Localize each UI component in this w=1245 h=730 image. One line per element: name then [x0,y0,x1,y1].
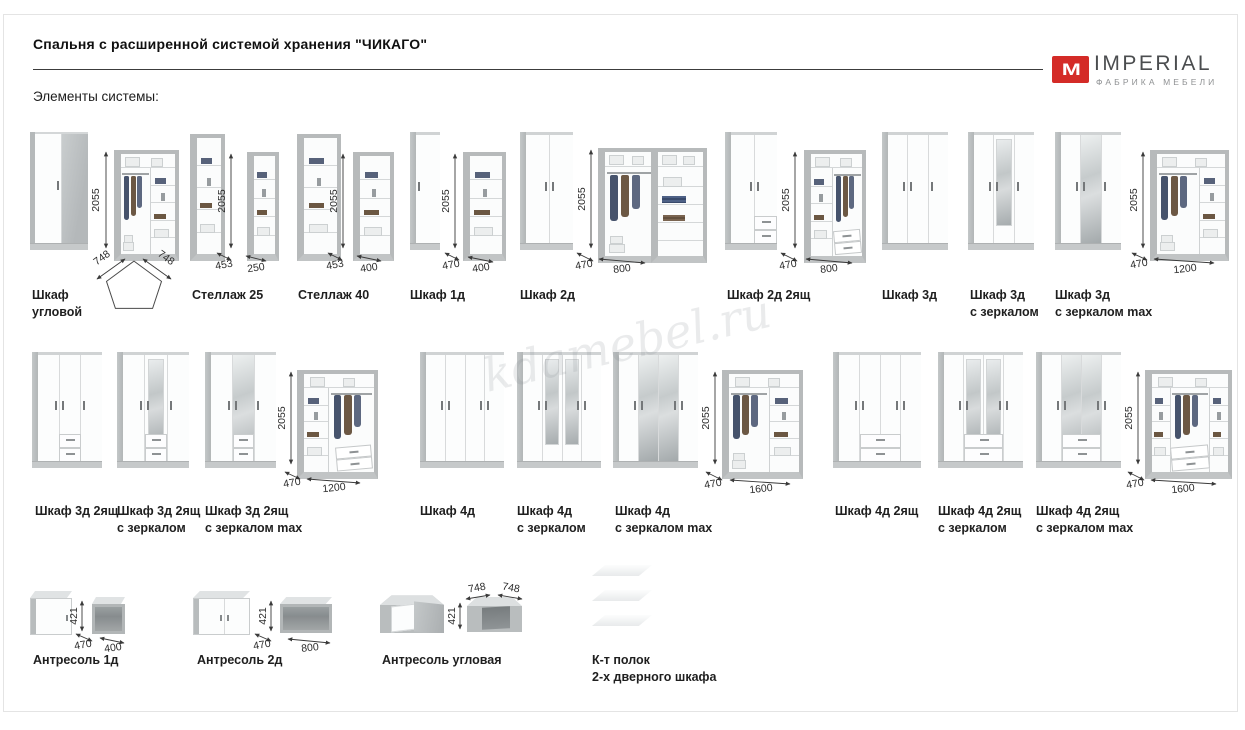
storage-box [840,158,852,167]
dimension-arrow [288,639,330,643]
interior-columns [360,160,390,254]
interior-column-cub [304,388,328,472]
storage-box [663,177,682,187]
wardrobe-closed-view [938,352,1023,468]
interior-columns [1157,168,1225,254]
shelf-item [819,194,823,202]
shelf-line [360,198,390,199]
wardrobe-closed-view [420,352,504,468]
item-label-line: 2-х дверного шкафа [592,669,716,686]
door-handle [66,615,68,621]
wardrobe-plinth [613,461,698,468]
item-label-line: Шкаф 4д 2ящ [938,503,1021,520]
item-shkaf-uglovoy: 2055748748Шкафугловой [30,132,180,322]
shelf-item [307,432,319,437]
item-interior-4d: 20554701600 [700,352,816,502]
item-label: Шкаф 3дс зеркалом [970,287,1039,321]
corner-cabinet-open-view [467,595,522,632]
wardrobe-door [1101,355,1121,462]
wardrobe-plinth [30,243,88,250]
wardrobe-door [254,355,276,462]
item-label-line: Шкаф 4д [420,503,475,520]
wardrobe-open-view [297,134,341,261]
catalog-page: Спальня с расширенной системой хранения … [0,0,1245,730]
dimension-arrow [76,634,92,641]
item-label: Шкаф 3дс зеркалом max [1055,287,1152,321]
shelf-item [308,398,319,404]
door-handle [634,401,636,410]
shelf-item [262,189,266,197]
cabinet-top-face [467,595,522,606]
interior-columns [470,160,502,254]
wardrobe-closed-view [410,132,440,250]
shelf-item [309,158,324,164]
wardrobe-plinth [410,243,440,250]
item-label-line: Шкаф 3д [1055,287,1152,304]
shelf-line [770,438,799,439]
wardrobe-door [658,355,678,462]
wardrobe-closed-view [32,352,102,468]
storage-box [309,224,328,233]
item-label: К-т полок2-х дверного шкафа [592,652,716,686]
door-handle [228,401,230,410]
item-label: Шкаф 3д 2ящс зеркалом max [205,503,302,537]
item-label-line: с зеркалом [938,520,1021,537]
hanging-clothes [610,175,618,222]
interior-column-cub [769,388,799,472]
item-label: Шкаф 4д 2ящс зеркалом max [1036,503,1133,537]
shelf-line [470,216,502,217]
door-handle [1064,401,1066,410]
dimension-label: 748 [501,581,520,596]
door-handle [959,401,961,410]
wardrobe-door [888,135,907,244]
wardrobe-door [523,355,542,462]
shelf-line [1210,405,1228,406]
wardrobe-door [1101,135,1121,244]
storage-box [1203,229,1218,238]
door-handle [83,401,85,410]
shelf-item [1210,193,1214,201]
door-handle [55,401,57,410]
interior-column-cub [360,160,390,254]
wardrobe-door [638,355,658,462]
door-handle [170,401,172,410]
hanging-clothes [751,395,757,427]
wardrobe-closed-view [882,132,948,250]
shelf-item [309,203,325,208]
wardrobe-front [523,355,601,462]
item-label-line: Шкаф 3д 2ящ [205,503,302,520]
storage-box [683,156,695,165]
item-label-line: Шкаф 3д 2ящ [117,503,200,520]
shelf-line [1152,438,1170,439]
dimension-label: 421 [257,607,269,625]
item-label: Шкаф 3д 2ящс зеркалом [117,503,200,537]
door-handle [1076,182,1078,191]
shelf-item [364,210,378,215]
shelf-line [197,187,221,188]
mirror [148,359,165,444]
item-label: Антресоль 1д [33,652,118,669]
wardrobe-plinth [117,461,189,468]
wardrobe-front [731,135,777,244]
interior-columns [605,167,653,256]
dimension-label: 2055 [90,188,102,212]
shelf-item [1204,178,1215,184]
cabinet-opening [482,606,510,630]
shelf-item [200,203,212,208]
item-label-line: Шкаф 4д 2ящ [1036,503,1133,520]
door-handle [441,401,443,410]
item-shkaf-4d-2yashch: Шкаф 4д 2ящ [833,352,938,528]
interior-column-fold [658,167,703,256]
drawer [233,434,255,448]
drawer [754,216,777,230]
item-label-line: Шкаф 1д [410,287,465,304]
door-handle [903,182,905,191]
item-label: Антресоль 2д [197,652,282,669]
drawer [860,434,901,448]
storage-box [307,447,322,456]
shelf-line [770,421,799,422]
shelf-item [372,189,376,197]
item-label-line: Шкаф 4д [517,503,586,520]
wardrobe-open-view [598,148,657,263]
item-label: Шкаф 3д [882,287,937,304]
dimension-arrow [445,253,459,260]
storage-box [1154,447,1165,456]
wardrobe-open-view [804,150,866,263]
shelf-panel [592,590,652,601]
cabinet-top-face [92,597,125,604]
wardrobe-door [549,135,573,244]
item-shkaf-3d-zerkalo: Шкаф 3дс зеркалом [968,132,1054,322]
item-label: Стеллаж 25 [192,287,263,304]
shelf-item [1213,398,1221,404]
hanging-rod [1159,173,1197,175]
drawer-stack [1062,434,1102,462]
dimension-label: 470 [252,638,271,653]
wardrobe-door [1042,355,1061,462]
cabinet-opening [280,604,332,633]
wardrobe-door [416,135,440,244]
wardrobe-closed-view [1055,132,1121,250]
storage-box [1213,447,1224,456]
storage-box [733,453,745,461]
interior-column-cub [254,160,275,254]
dimension-label: 800 [613,262,632,276]
wardrobe-front [974,135,1034,244]
storage-box [1158,377,1173,387]
storage-box [343,378,355,387]
item-label-line: Шкаф 2д 2ящ [727,287,810,304]
item-label-line: с зеркалом max [615,520,712,537]
cabinet-closed-view [193,591,250,635]
storage-box [610,236,624,244]
interior-column-cub [197,143,221,254]
shelf-line [1152,421,1170,422]
item-label-line: с зеркалом max [1036,520,1133,537]
item-shkaf-4d: Шкаф 4д [420,352,520,528]
dimension-label: 470 [1129,257,1148,272]
item-label: Стеллаж 40 [298,287,369,304]
shelf-line [197,165,221,166]
hanging-clothes [354,395,361,427]
drawer [860,448,901,462]
door-handle [235,401,237,410]
shelf-line [770,405,799,406]
item-antresol-uglovaya: 748748421Антресоль угловая [380,565,560,695]
storage-box [774,447,791,456]
item-label-line: Шкаф 3д [970,287,1039,304]
wardrobe-door [928,135,948,244]
wardrobe-plinth [938,461,1023,468]
item-label-line: с зеркалом [517,520,586,537]
dimension-label: 250 [246,261,265,275]
storage-box [1195,378,1207,387]
door-handle [681,401,683,410]
hanging-clothes [1175,395,1182,439]
item-label-line: угловой [32,304,82,321]
door-handle [903,401,905,410]
wardrobe-door [123,355,144,462]
shelf-line [304,187,337,188]
dimension-label: 1200 [322,481,347,495]
shelf-line [304,438,328,439]
item-label-line: Шкаф 3д 2ящ [35,503,118,520]
item-interior-3d-2yashch: 20554701200 [279,352,391,502]
storage-box [310,377,325,387]
wardrobe-closed-view [613,352,698,468]
shelf-line [470,198,502,199]
door-handle [418,182,420,191]
drawer-stack [860,434,901,462]
shelf-line [151,202,175,203]
interior-columns [197,143,221,254]
cabinet-front [30,598,72,635]
wardrobe-front [526,135,573,244]
shelf-item [1203,214,1215,219]
shelf-line [304,405,328,406]
storage-box [609,244,625,253]
dimension-arrow [100,638,124,643]
dimension-label: 470 [1125,477,1144,492]
wardrobe-door [731,135,754,244]
cabinet-door [224,599,250,634]
mirror [966,359,981,444]
shelf-item [201,158,212,164]
shelf-line [151,185,175,186]
wardrobe-closed-view [725,132,777,250]
shelf-line [811,203,832,204]
wardrobe-plinth [420,461,504,468]
dimension-arrow [1132,253,1147,260]
hanging-clothes [1192,395,1198,427]
dimension-label: 470 [73,638,92,653]
dimension-arrow [577,253,593,261]
item-shkaf-1d: 2055470400Шкаф 1д [410,132,510,322]
shelf-item [474,210,489,215]
wardrobe-closed-view [205,352,276,468]
wardrobe-door [900,355,921,462]
drawer [1062,434,1102,448]
wardrobe-door [974,135,993,244]
drawer-stack [335,444,373,471]
drawer [145,434,167,448]
dimension-arrow [730,480,790,484]
door-handle [757,182,759,191]
storage-box [124,235,133,243]
wardrobe-door [445,355,465,462]
item-shkaf-3d-2yashch: Шкаф 3д 2ящ [32,352,118,528]
drawer [233,448,255,462]
item-stellazh-40: 2055453400Стеллаж 40 [297,132,397,322]
wardrobe-door [167,355,189,462]
wardrobe-front [944,355,1023,462]
cabinet-open-view [280,597,332,633]
door-handle [577,401,579,410]
interior-column-cub [1152,388,1170,472]
shelf-line [1200,185,1225,186]
storage-box [768,378,780,387]
item-shkaf-2d-2yashch: 2055470800Шкаф 2д 2ящ [725,132,885,322]
storage-box [732,460,746,469]
dimension-label: 800 [820,262,839,276]
wardrobe-open-view [190,134,225,261]
shelf-item [257,172,266,178]
wardrobe-plinth [1036,461,1121,468]
wardrobe-open-view [651,148,707,263]
door-handle [1097,401,1099,410]
hanging-clothes [843,176,848,217]
cabinet-door [199,599,224,634]
shelf-item [1155,398,1163,404]
door-handle [862,401,864,410]
shelf-line [254,179,275,180]
shelf-item [775,398,788,404]
wardrobe-door [211,355,232,462]
shelf-line [304,209,337,210]
item-label-line: Антресоль угловая [382,652,502,669]
interior-column-cub [150,168,175,254]
storage-box [125,157,140,167]
door-handle [140,401,142,410]
item-label-line: К-т полок [592,652,716,669]
wardrobe-plinth [517,461,601,468]
storage-box [815,157,830,167]
interior-column-hang [1157,168,1199,254]
hanging-clothes [742,395,749,435]
dimension-label: 1600 [749,482,774,496]
hanging-clothes [1180,176,1187,209]
interior-column-hang [121,168,150,254]
door-handle [545,401,547,410]
door-handle [855,401,857,410]
wardrobe-door [38,355,59,462]
interior-column-hang [605,167,653,256]
cabinet-door [391,603,416,632]
item-antresol-1d: 421470400Антресоль 1д [30,565,180,690]
shelf-panel [592,615,652,626]
hanging-rod [122,173,149,175]
item-label: Шкаф 3д 2ящ [35,503,118,520]
wardrobe-front [426,355,504,462]
wardrobe-door [993,135,1013,244]
item-label-line: с зеркалом [970,304,1039,321]
dimension-label: 1600 [1171,482,1196,496]
cabinet-closed-view [30,591,72,635]
wardrobe-closed-view [968,132,1034,250]
wardrobe-front [38,355,102,462]
wardrobe-front [888,135,948,244]
dimension-label: 470 [574,258,593,273]
shelf-item [155,178,166,184]
door-handle [989,182,991,191]
wardrobe-open-view [353,152,394,261]
shelf-line [470,179,502,180]
hanging-clothes [137,176,142,209]
door-handle [257,401,259,410]
shelf-item [774,432,788,437]
wardrobe-plinth [882,243,948,250]
wardrobe-door [80,355,102,462]
wardrobe-door [426,355,445,462]
item-label-line: Шкаф 4д 2ящ [835,503,918,520]
shelf-line [360,179,390,180]
door-handle [674,401,676,410]
shelf-item [1159,412,1163,420]
storage-box [123,242,134,251]
hanging-clothes [849,176,854,209]
dimension-label: 2055 [440,189,452,213]
dimension-label: 748 [467,581,486,596]
hanging-clothes [632,175,640,209]
dimension-label: 400 [359,261,378,275]
item-label: Шкафугловой [32,287,82,321]
hanging-clothes [836,176,841,222]
corner-cabinet-closed-view [380,593,444,633]
interior-columns [304,143,337,254]
shelf-line [151,220,175,221]
wardrobe-plinth [205,461,276,468]
door-handle [545,182,547,191]
interior-column-cub [1199,168,1225,254]
wardrobe-door [542,355,562,462]
shelf-set-view [592,565,654,633]
drawer [754,230,777,244]
hanging-clothes [124,176,129,221]
wardrobe-closed-view [1036,352,1121,468]
shelf-item [1217,412,1221,420]
item-label-line: с зеркалом max [205,520,302,537]
door-handle [931,182,933,191]
wardrobe-closed-view [833,352,921,468]
wardrobe-front [1042,355,1121,462]
wardrobe-door [944,355,963,462]
interior-columns [658,167,703,256]
corner-wardrobe-closed-view [30,132,88,250]
wardrobe-plinth [520,243,573,250]
shelf-line [254,216,275,217]
storage-box [609,155,624,165]
storage-box [735,377,750,387]
storage-box [662,155,677,165]
cabinet-top-face [193,591,250,598]
wardrobe-front [211,355,276,462]
shelf-item [475,172,489,178]
item-shkaf-3d: Шкаф 3д [882,132,968,322]
